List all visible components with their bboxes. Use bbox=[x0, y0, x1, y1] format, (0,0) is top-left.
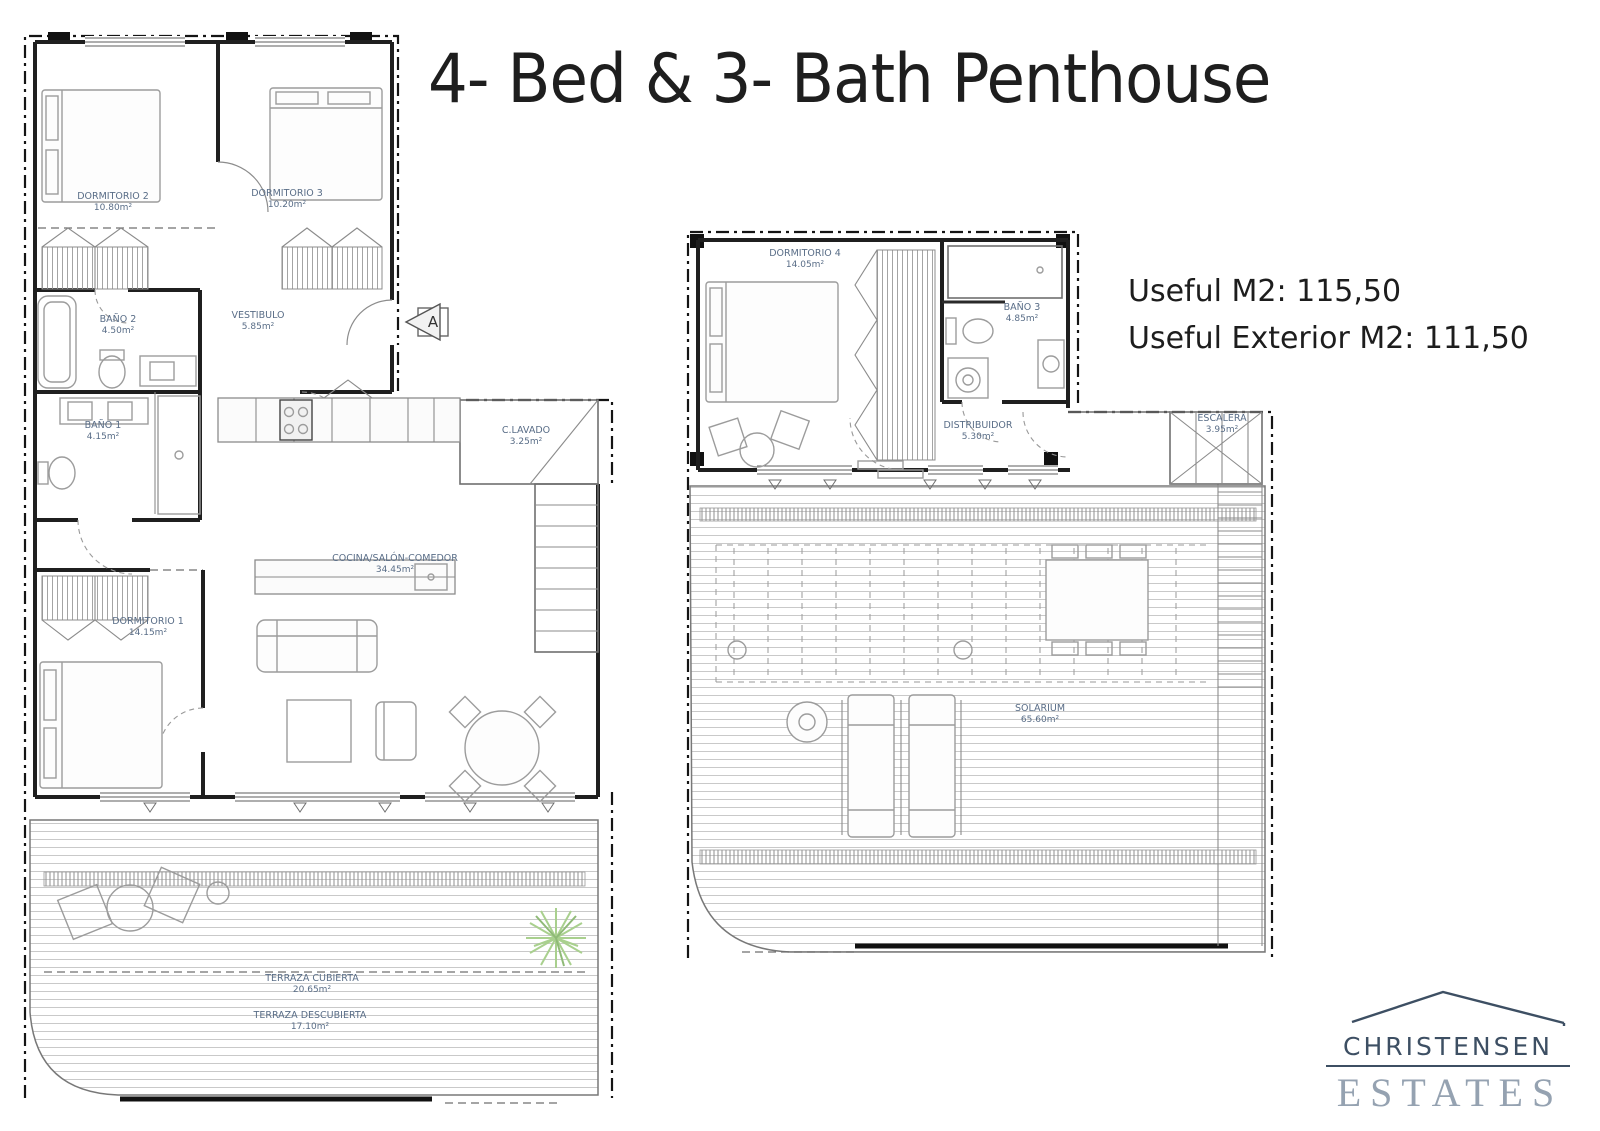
room-label-dormitorio-1: DORMITORIO 1 14.15m² bbox=[112, 616, 184, 640]
room-label-dormitorio-4: DORMITORIO 4 14.05m² bbox=[769, 248, 841, 272]
solarium-dining bbox=[1046, 545, 1148, 655]
page-title: 4- Bed & 3- Bath Penthouse bbox=[428, 40, 1270, 119]
room-label-dormitorio-3: DORMITORIO 3 10.20m² bbox=[251, 188, 323, 212]
useful-exterior-m2: Useful Exterior M2: 111,50 bbox=[1128, 315, 1529, 362]
solarium-deck bbox=[690, 486, 1265, 952]
room-label-vestibulo: VESTIBULO 5.85m² bbox=[231, 310, 284, 334]
terrace-drain-strip bbox=[44, 872, 585, 886]
living-furniture bbox=[257, 620, 556, 802]
room-label-terraza-descubierta: TERRAZA DESCUBIERTA 17.10m² bbox=[254, 1010, 367, 1034]
room-label-cocina-salon: COCINA/SALÓN-COMEDOR 34.45m² bbox=[332, 553, 458, 577]
room-label-bano-2: BAÑO 2 4.50m² bbox=[100, 314, 137, 338]
room-label-bano-3: BAÑO 3 4.85m² bbox=[1004, 302, 1041, 326]
area-info: Useful M2: 115,50 Useful Exterior M2: 11… bbox=[1128, 268, 1529, 362]
room-label-terraza-cubierta: TERRAZA CUBIERTA 20.65m² bbox=[265, 973, 359, 997]
bath2-fixtures bbox=[38, 296, 196, 388]
useful-m2: Useful M2: 115,50 bbox=[1128, 268, 1529, 315]
room-label-distribuidor: DISTRIBUIDOR 5.30m² bbox=[943, 420, 1012, 444]
bed-dorm2 bbox=[42, 90, 160, 202]
christensen-estates-logo: CHRISTENSEN ESTATES bbox=[1326, 986, 1570, 1116]
windows-living bbox=[100, 791, 575, 812]
windows-upper bbox=[757, 461, 1058, 489]
logo-brand-type: ESTATES bbox=[1330, 1069, 1570, 1116]
room-label-bano-1: BAÑO 1 4.15m² bbox=[85, 420, 122, 444]
roof-icon bbox=[1326, 986, 1570, 1026]
wardrobe-dorm4 bbox=[855, 250, 935, 460]
section-marker-letter: A bbox=[428, 313, 438, 331]
logo-divider bbox=[1326, 1065, 1570, 1067]
bed-dorm1 bbox=[40, 662, 162, 788]
floorplan-drawing bbox=[0, 0, 1600, 1131]
terrace-deck bbox=[30, 820, 598, 1095]
bed-dorm3 bbox=[270, 88, 382, 200]
room-label-lavado: C.LAVADO 3.25m² bbox=[502, 425, 550, 449]
room-label-solarium: SOLARIUM 65.60m² bbox=[1015, 703, 1065, 727]
stairs-main bbox=[535, 484, 598, 652]
bed-dorm4 bbox=[706, 282, 838, 467]
room-label-escalera: ESCALERA 3.95m² bbox=[1197, 413, 1246, 437]
logo-brand-name: CHRISTENSEN bbox=[1326, 1032, 1570, 1061]
bath1-fixtures bbox=[38, 392, 200, 514]
room-label-dormitorio-2: DORMITORIO 2 10.80m² bbox=[77, 191, 149, 215]
